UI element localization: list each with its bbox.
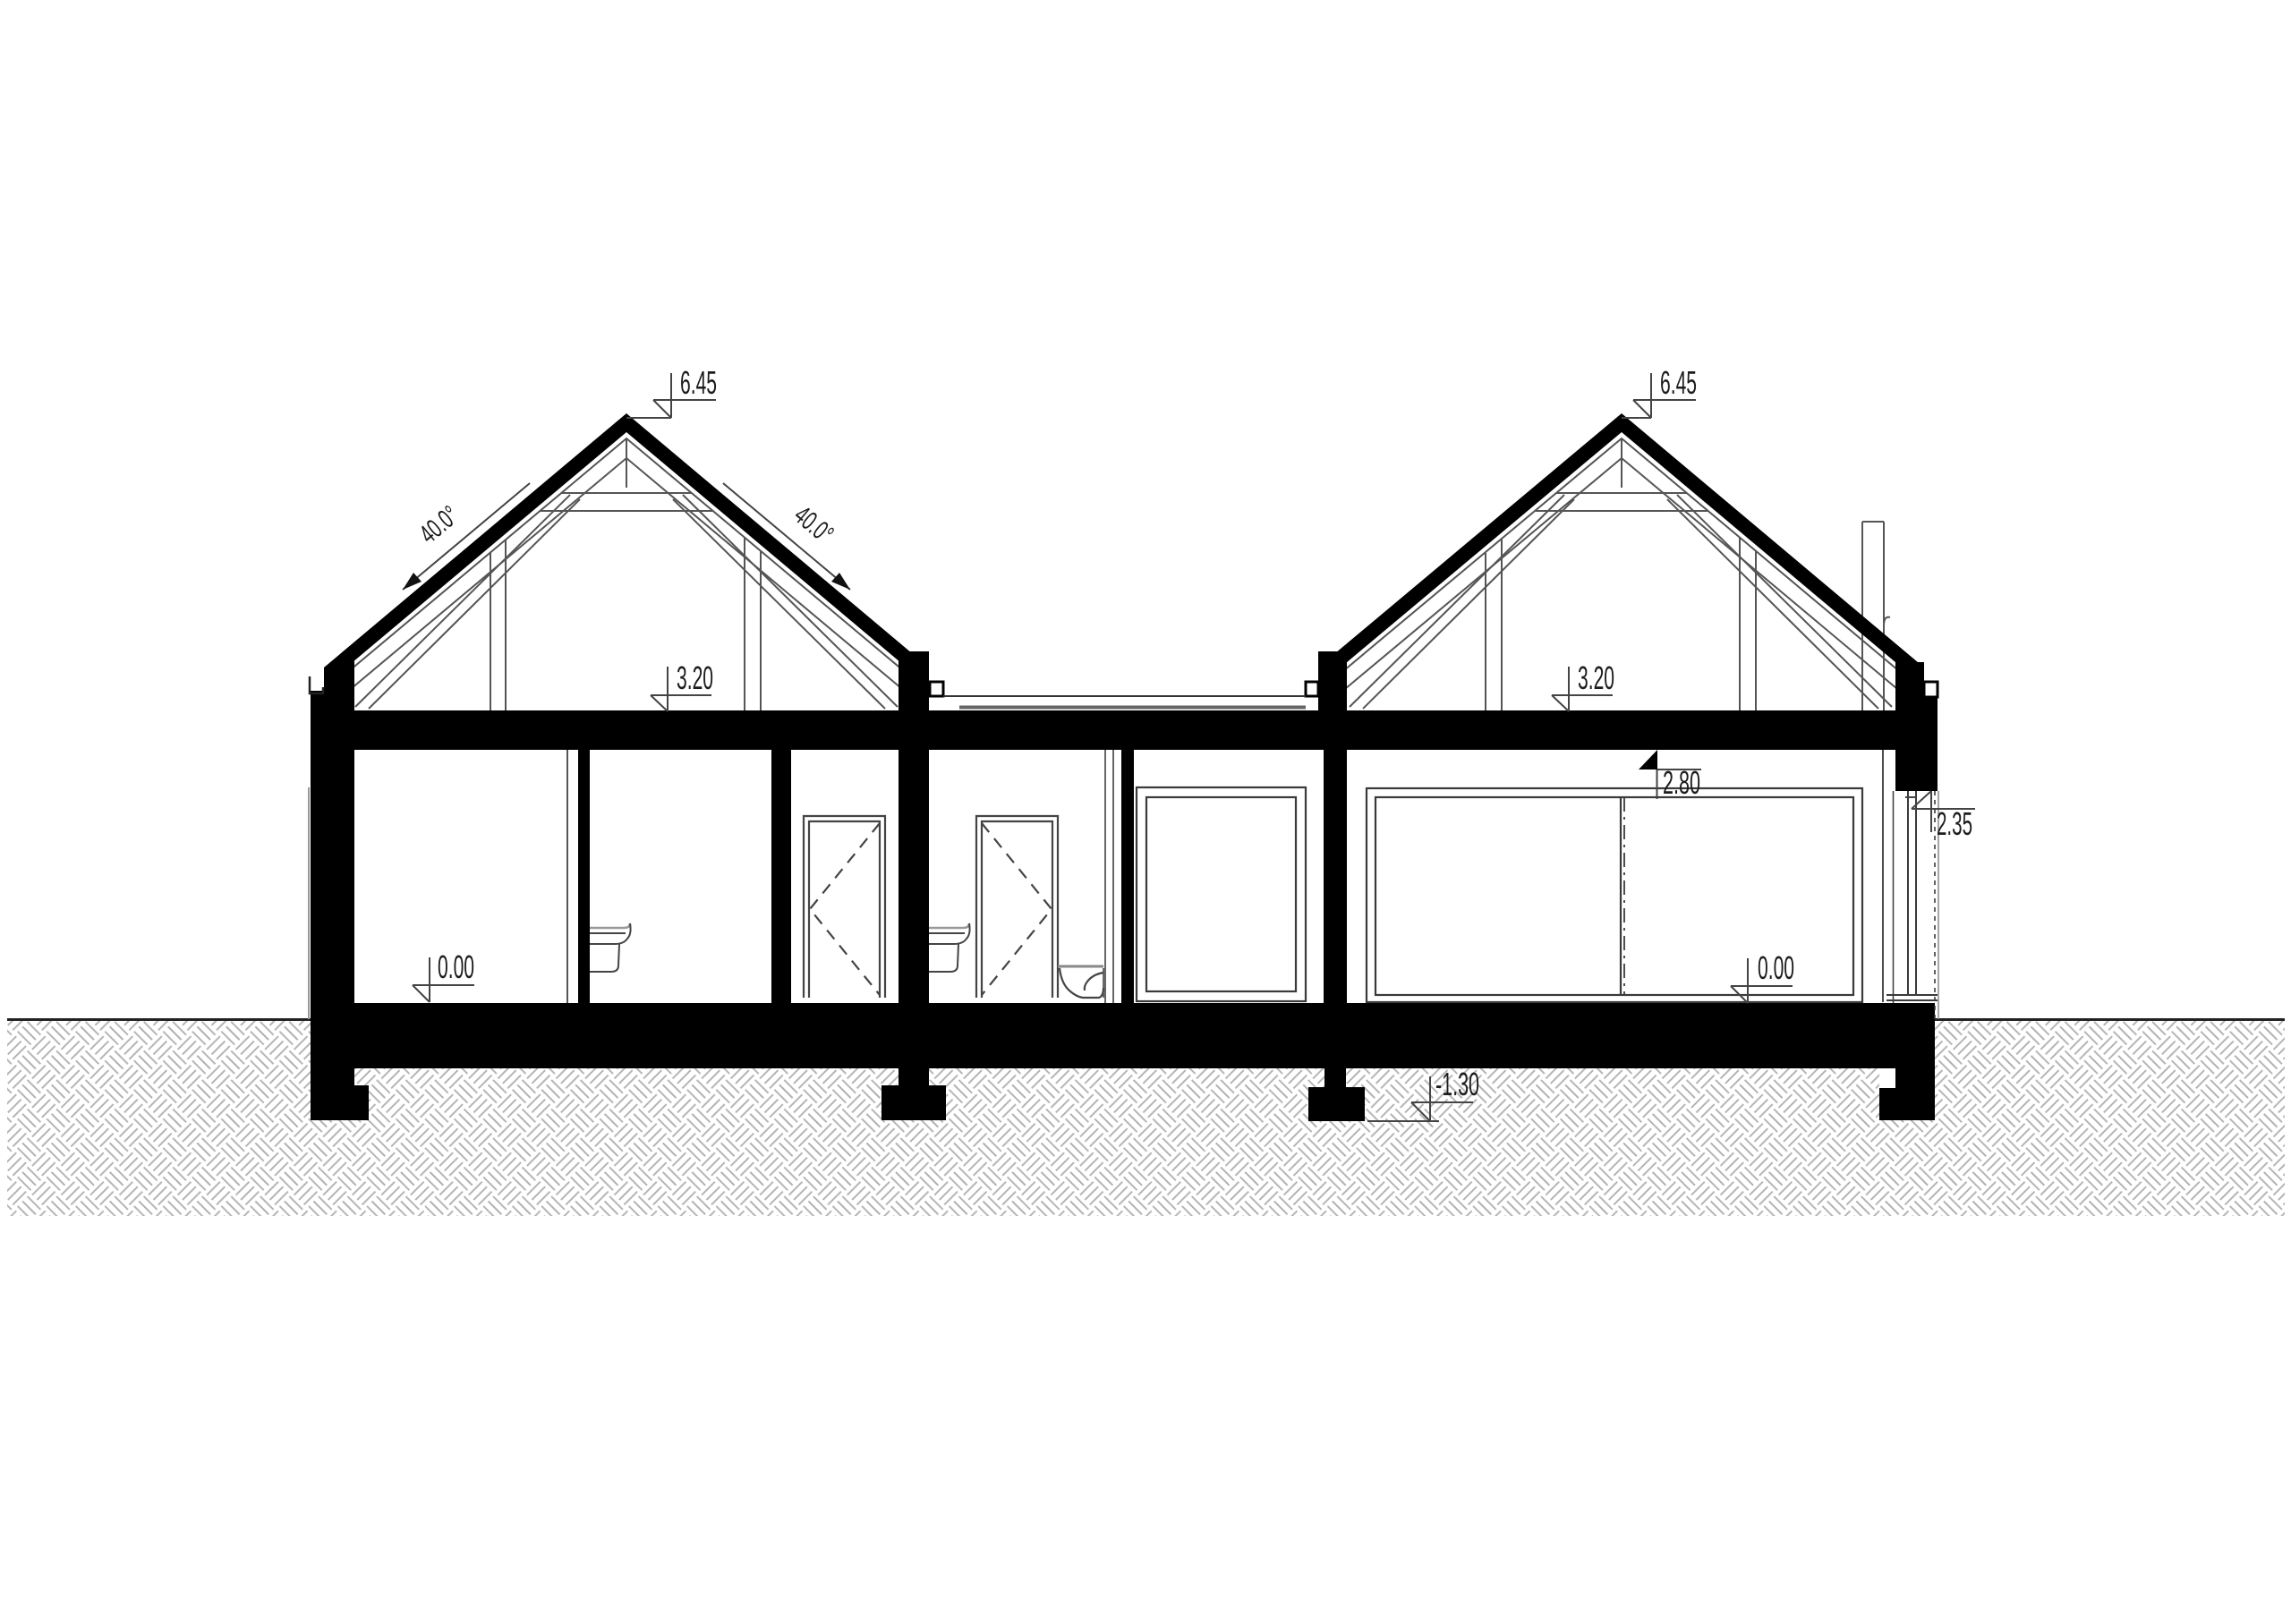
svg-text:3.20: 3.20 (1578, 659, 1614, 696)
svg-text:2.35: 2.35 (1937, 805, 1972, 842)
svg-text:0.00: 0.00 (438, 948, 474, 985)
svg-text:3.20: 3.20 (677, 659, 713, 696)
svg-text:-1.30: -1.30 (1435, 1066, 1479, 1102)
svg-text:0.00: 0.00 (1758, 949, 1794, 986)
svg-text:6.45: 6.45 (1660, 364, 1697, 401)
svg-text:2.80: 2.80 (1663, 764, 1700, 801)
svg-text:6.45: 6.45 (680, 364, 717, 401)
